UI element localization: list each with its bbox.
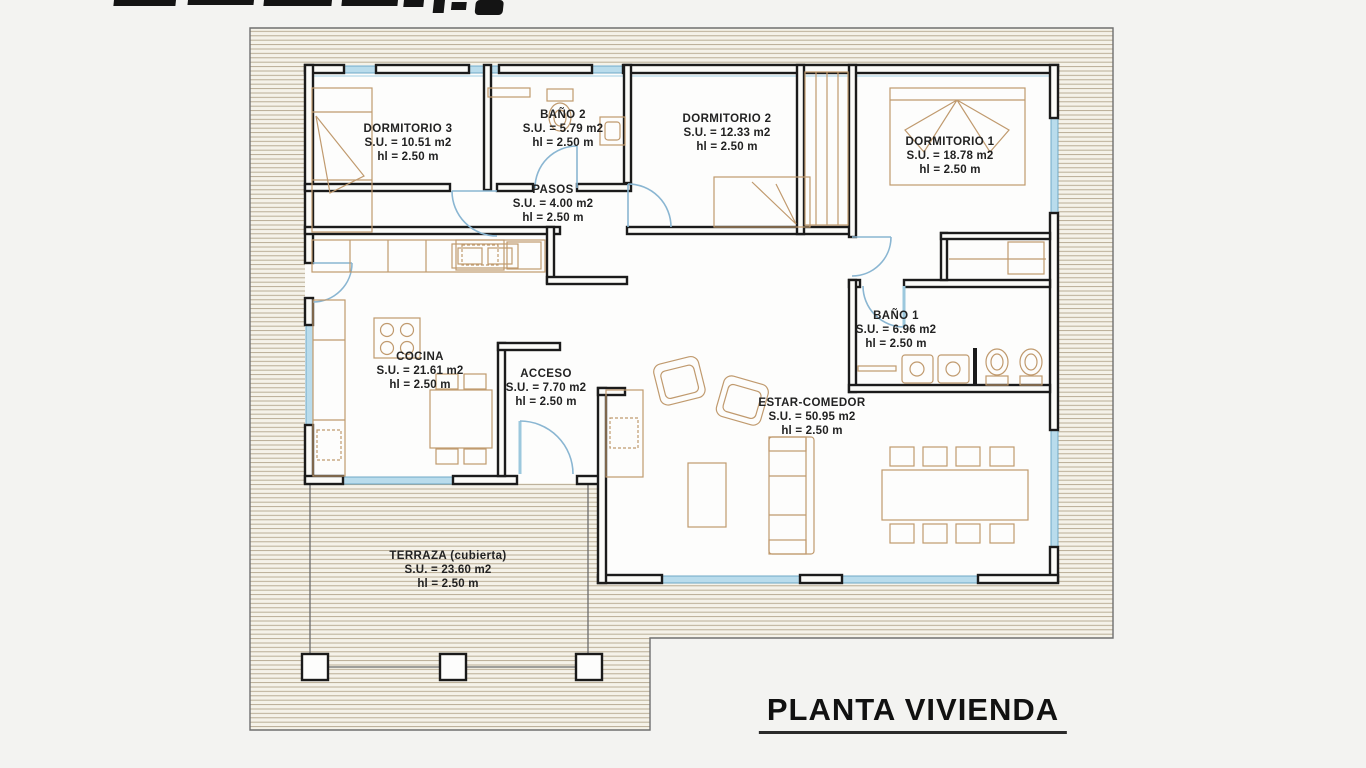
room-label-dormitorio-2: DORMITORIO 2 S.U. = 12.33 m2 hl = 2.50 m <box>683 112 772 154</box>
floor-plan-page: DORMITORIO 3 S.U. = 10.51 m2 hl = 2.50 m… <box>0 0 1366 768</box>
room-label-pasos: PASOS S.U. = 4.00 m2 hl = 2.50 m <box>513 183 593 225</box>
room-label-acceso: ACCESO S.U. = 7.70 m2 hl = 2.50 m <box>506 367 586 409</box>
room-label-cocina: COCINA S.U. = 21.61 m2 hl = 2.50 m <box>376 350 463 392</box>
plan-title: PLANTA VIVIENDA <box>759 692 1067 734</box>
room-label-bano-2: BAÑO 2 S.U. = 5.79 m2 hl = 2.50 m <box>523 108 603 150</box>
room-label-dormitorio-3: DORMITORIO 3 S.U. = 10.51 m2 hl = 2.50 m <box>364 122 453 164</box>
cropped-header-text <box>112 0 504 15</box>
room-label-terraza: TERRAZA (cubierta) S.U. = 23.60 m2 hl = … <box>389 549 506 591</box>
room-label-bano-1: BAÑO 1 S.U. = 6.96 m2 hl = 2.50 m <box>856 309 936 351</box>
room-label-estar-comedor: ESTAR-COMEDOR S.U. = 50.95 m2 hl = 2.50 … <box>758 396 865 438</box>
room-label-dormitorio-1: DORMITORIO 1 S.U. = 18.78 m2 hl = 2.50 m <box>906 135 995 177</box>
bath1-divider-wall <box>973 348 977 385</box>
